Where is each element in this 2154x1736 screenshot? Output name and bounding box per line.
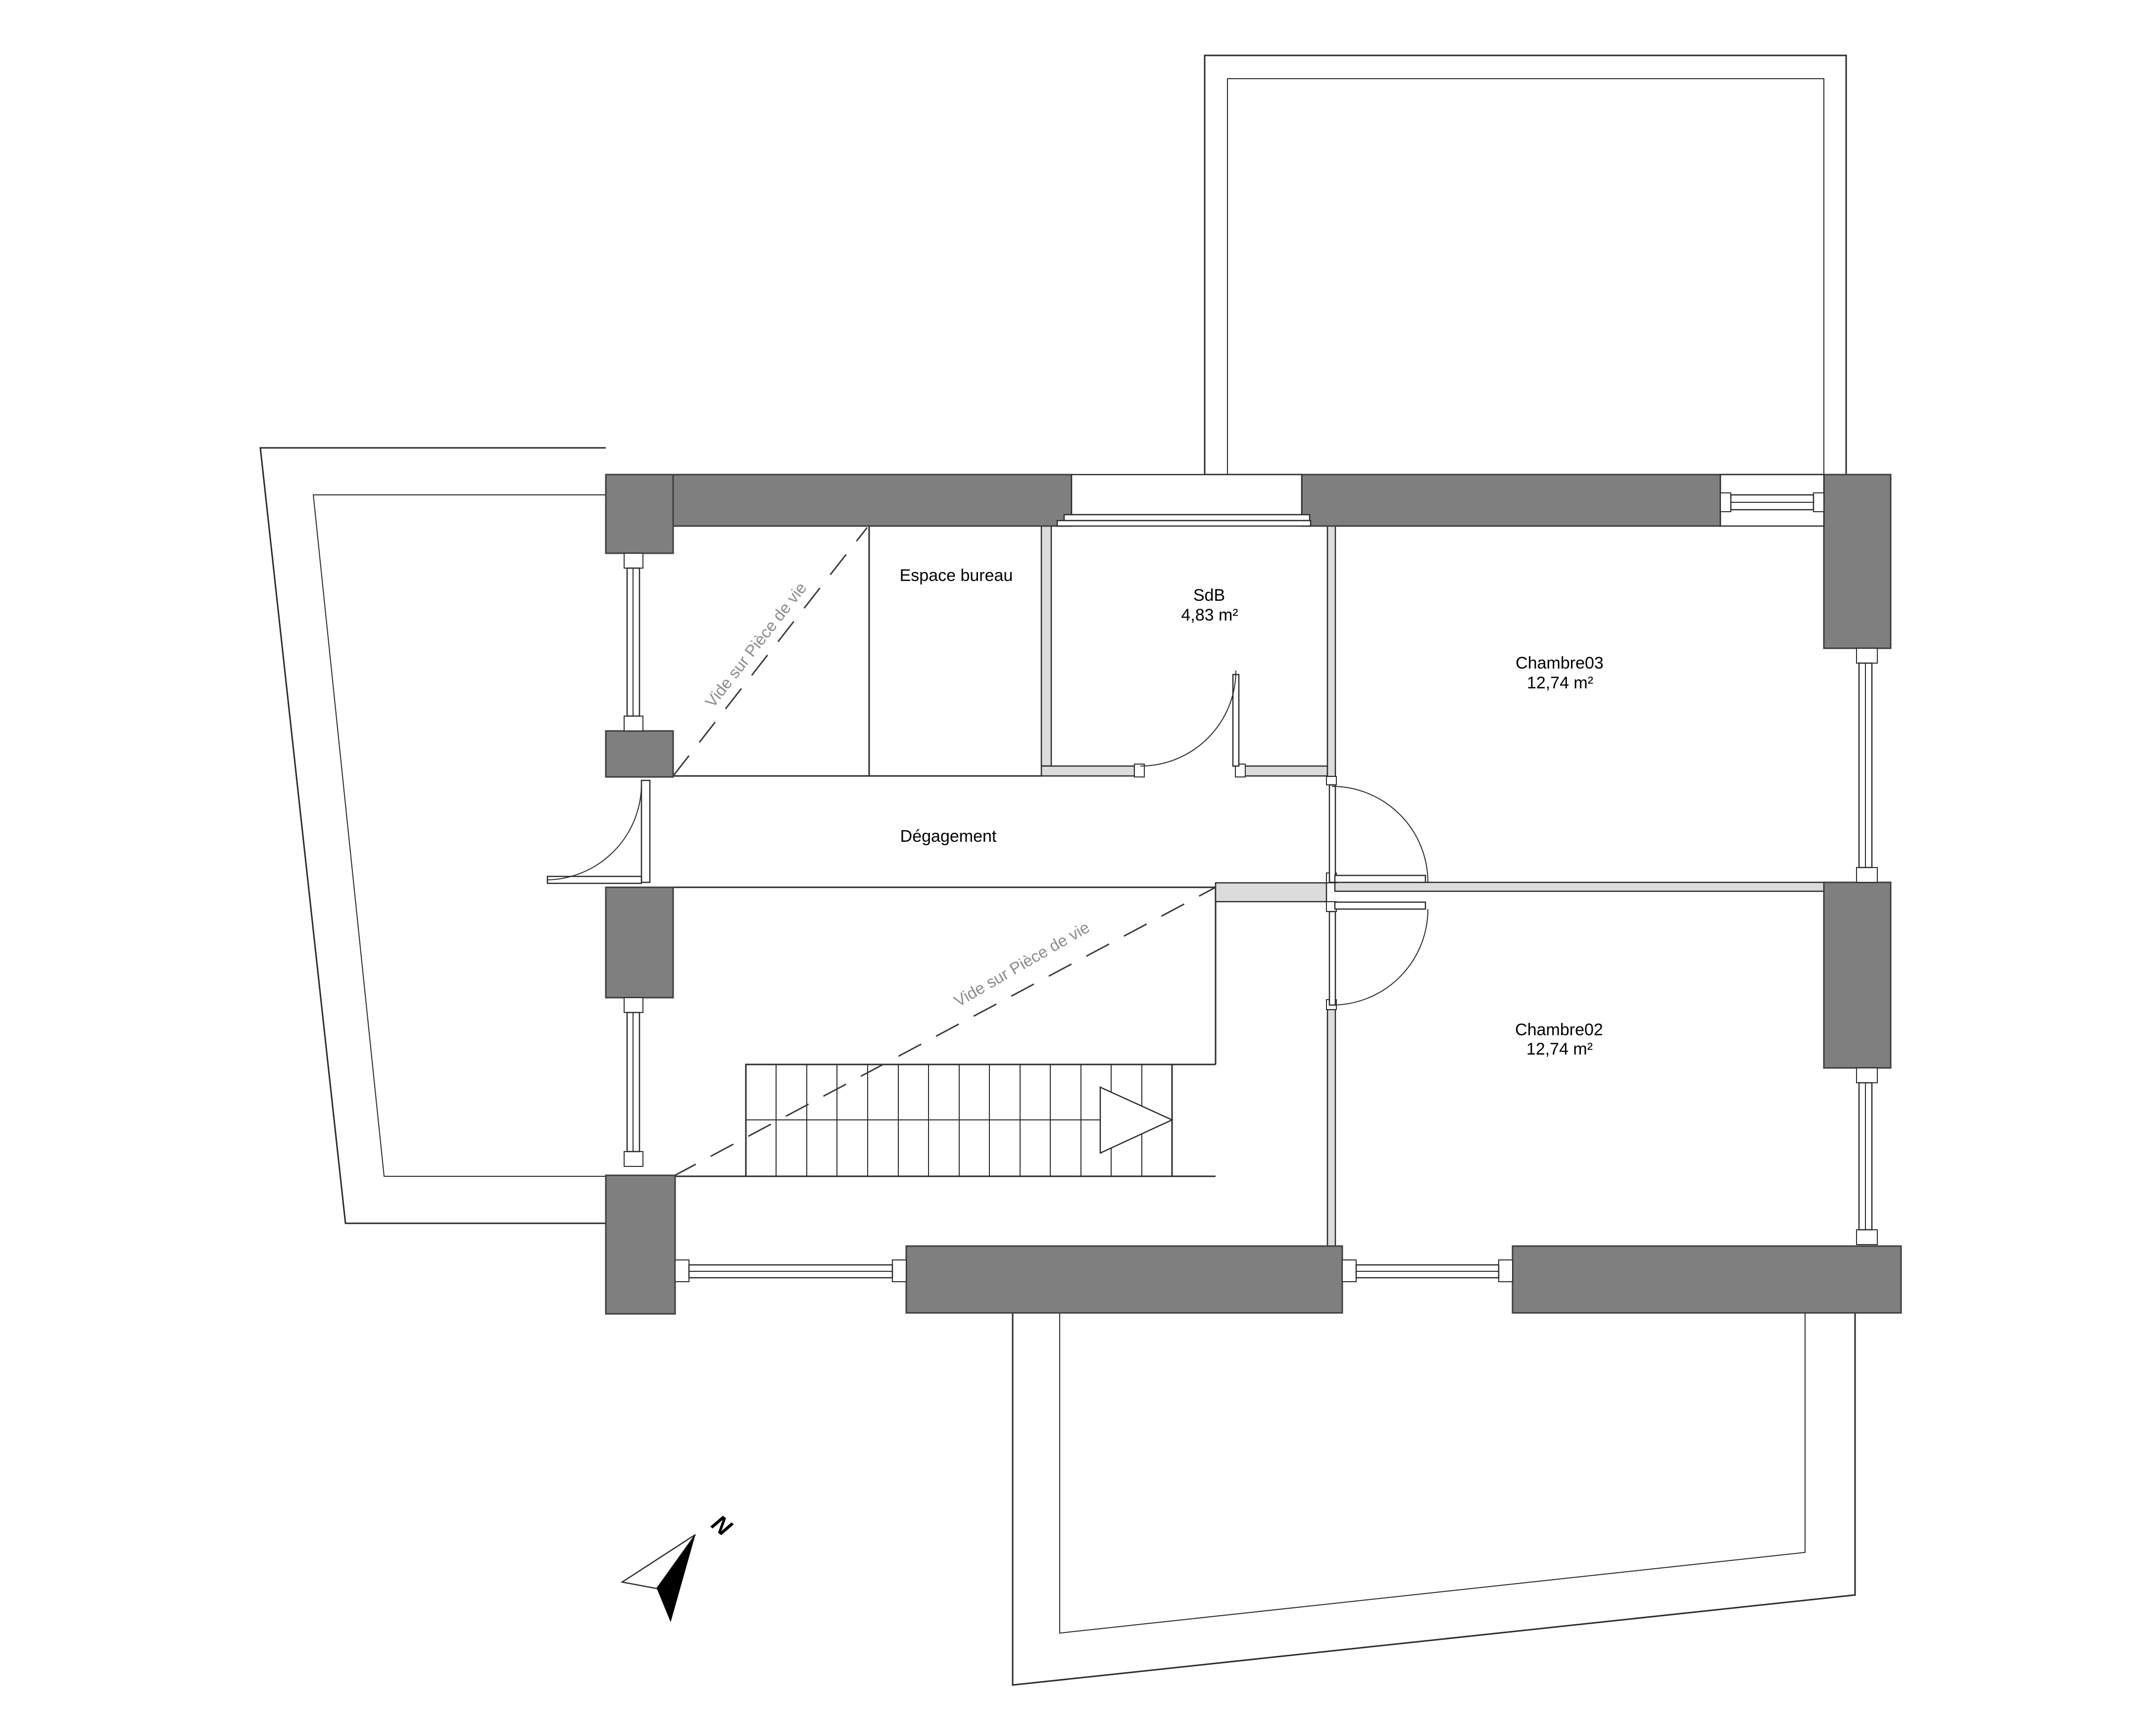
window-jamb bbox=[624, 998, 643, 1013]
door-sdb bbox=[1140, 671, 1239, 766]
wall-left-mid2 bbox=[606, 887, 673, 998]
door-leaf-open bbox=[1335, 902, 1425, 909]
north-arrow: N bbox=[622, 1510, 737, 1622]
door-chambre03 bbox=[1329, 785, 1428, 882]
window-right-lower bbox=[1857, 1068, 1877, 1245]
floor-plan-canvas: N Espace bureau SdB 4,83 m² Chambre03 12… bbox=[0, 0, 2154, 1736]
window-recess bbox=[1072, 475, 1302, 515]
room-label-chambre03: Chambre03 bbox=[1516, 654, 1604, 673]
left-terrace-inner-line bbox=[313, 495, 606, 1176]
window-left-upper bbox=[624, 553, 643, 731]
partition-chambre02-03 bbox=[1335, 882, 1824, 891]
window-jamb bbox=[892, 1260, 906, 1282]
room-label-chambre02: Chambre02 bbox=[1515, 1020, 1603, 1039]
wall-left-corner bbox=[606, 475, 673, 553]
left-terrace-outer-line bbox=[260, 448, 606, 1223]
window-jamb bbox=[1813, 493, 1824, 512]
wall-left-bottom-corner bbox=[606, 1175, 675, 1314]
window-bottom-right bbox=[1342, 1260, 1513, 1282]
door-leaf bbox=[1329, 912, 1335, 1005]
window-jamb bbox=[1857, 868, 1877, 882]
window-jamb bbox=[1499, 1260, 1513, 1282]
window-jamb bbox=[1857, 1230, 1877, 1245]
void1-dashed-diagonal bbox=[673, 528, 867, 776]
window-jamb bbox=[675, 1260, 689, 1282]
door-leaf bbox=[547, 876, 641, 883]
wall-bottom-right bbox=[1513, 1246, 1901, 1313]
floor-plan-page: N Espace bureau SdB 4,83 m² Chambre03 12… bbox=[0, 0, 2154, 1736]
partition-sdb-bottom-right bbox=[1238, 766, 1327, 776]
staircase bbox=[746, 1064, 1172, 1176]
roof-inner-rect bbox=[1227, 79, 1824, 475]
room-label-espace-bureau: Espace bureau bbox=[900, 566, 1013, 585]
window-jamb bbox=[624, 716, 643, 731]
window-left-lower bbox=[624, 998, 643, 1166]
wall-bottom-center bbox=[906, 1246, 1342, 1313]
north-label: N bbox=[707, 1510, 737, 1542]
window-jamb bbox=[624, 553, 643, 568]
interior-partitions bbox=[1041, 526, 1824, 1246]
window-jamb bbox=[1857, 648, 1877, 663]
window-jamb bbox=[624, 1152, 643, 1166]
balcony-outer-line bbox=[1013, 1313, 1855, 1685]
door-leaf bbox=[1329, 785, 1335, 882]
window-sill bbox=[1064, 515, 1310, 521]
room-label-degagement: Dégagement bbox=[900, 827, 997, 846]
roof-outline-top-right bbox=[1205, 55, 1846, 475]
room-area-chambre03: 12,74 m² bbox=[1527, 674, 1593, 692]
door-leaf-open bbox=[1335, 875, 1425, 882]
door-left-wall bbox=[547, 780, 650, 883]
window-jamb bbox=[1342, 1260, 1356, 1282]
room-label-sdb: SdB bbox=[1193, 586, 1225, 605]
partition-chambre02-left bbox=[1327, 1010, 1335, 1246]
partition-sdb-bottom-left bbox=[1041, 766, 1134, 776]
room-area-chambre02: 12,74 m² bbox=[1526, 1040, 1593, 1059]
bottom-balcony-outline bbox=[1013, 1313, 1855, 1685]
door-jamb bbox=[1326, 776, 1336, 785]
window-bottom-left bbox=[675, 1260, 906, 1282]
wall-top-right bbox=[1302, 475, 1720, 526]
partition-sdb-left bbox=[1041, 526, 1051, 766]
window-right-upper bbox=[1857, 648, 1877, 882]
interior-boundary-lines bbox=[673, 526, 1216, 1176]
partition-door-stub bbox=[1216, 883, 1326, 902]
balcony-inner-line bbox=[1060, 1313, 1805, 1633]
door-frame bbox=[641, 780, 650, 882]
window-top-center bbox=[1057, 475, 1311, 526]
partition-chambre03-left bbox=[1327, 526, 1335, 776]
door-swing-arc bbox=[1332, 786, 1428, 882]
void-annotation-1: Vide sur Pièce de vie bbox=[701, 579, 810, 711]
stair-direction-arrow bbox=[1100, 1087, 1172, 1153]
wall-right-mid bbox=[1824, 882, 1891, 1068]
window-sill bbox=[1057, 521, 1311, 526]
door-swing-arc bbox=[547, 784, 641, 880]
window-jamb bbox=[1720, 493, 1731, 512]
door-chambre02 bbox=[1329, 902, 1428, 1005]
window-top-right bbox=[1720, 475, 1824, 526]
wall-right-top bbox=[1824, 475, 1891, 648]
room-area-sdb: 4,83 m² bbox=[1181, 606, 1238, 625]
door-swing-arc bbox=[1140, 671, 1236, 766]
wall-left-mid1 bbox=[606, 731, 673, 777]
wall-top-left bbox=[606, 475, 1072, 526]
left-terrace-outline bbox=[260, 448, 606, 1223]
roof-outer-rect bbox=[1205, 55, 1846, 475]
door-swing-arc bbox=[1332, 909, 1428, 1005]
window-jamb bbox=[1857, 1068, 1877, 1083]
